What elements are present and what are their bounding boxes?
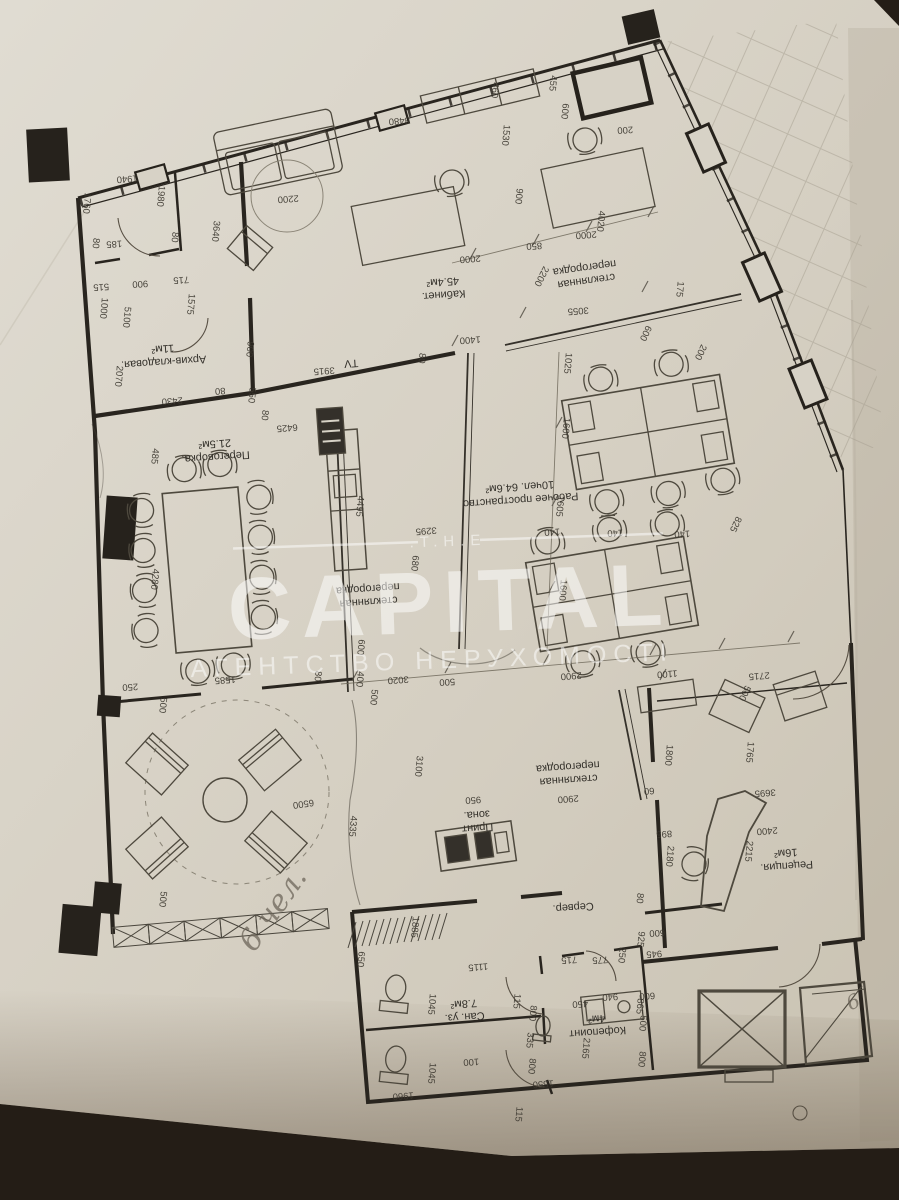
room-label-glass-partition-3: стекляннаяперегородка <box>535 758 601 788</box>
dimension-label: 4335 <box>346 815 359 837</box>
dimension-label: 4495 <box>353 495 366 517</box>
dimension-label: 2200 <box>277 192 299 204</box>
dimension-label: 940 <box>602 990 619 1002</box>
dimension-label: 1100 <box>657 667 678 679</box>
dimension-label: 80 <box>215 385 226 397</box>
dimension-label: 250 <box>122 680 139 692</box>
dimension-label: 925 <box>634 931 646 948</box>
dimension-label: 900 <box>132 277 149 289</box>
dimension-label: 1765 <box>743 741 756 763</box>
dimension-label: 600 <box>649 926 666 938</box>
dimension-label: 3100 <box>412 755 425 777</box>
dimension-label: 1940 <box>116 172 138 184</box>
dimension-label: 80 <box>416 352 428 363</box>
dimension-label: 1115 <box>468 960 488 972</box>
dimension-label: 500 <box>367 689 379 706</box>
dimension-label: 775 <box>592 953 609 965</box>
dimension-label: 140 <box>607 526 624 538</box>
dimension-label: 115 <box>510 993 522 1009</box>
dimension-label: 800 <box>525 1058 537 1075</box>
dimension-label: 100 <box>463 1055 480 1067</box>
dimension-label: 1045 <box>425 993 438 1015</box>
dimension-label: 2215 <box>742 840 755 862</box>
dimension-label: 1550 <box>532 1077 554 1089</box>
dimension-label: 115 <box>512 1106 524 1122</box>
dimension-label: 2430 <box>161 394 183 406</box>
dimension-label: 3640 <box>209 220 222 242</box>
dimension-label: 715 <box>173 273 190 285</box>
dimension-label: 2400 <box>756 824 778 836</box>
dimension-label: 175 <box>673 281 685 298</box>
dimension-label: 550 <box>245 387 257 404</box>
dimension-label: 3695 <box>754 786 776 798</box>
dimension-label: 80 <box>259 409 271 420</box>
dimension-label: 800 <box>635 1051 647 1068</box>
dimension-label: 850 <box>526 239 543 251</box>
dimension-label: 900 <box>243 341 255 358</box>
dimension-label: 1885 <box>408 916 421 938</box>
dimension-label: 1980 <box>154 185 167 207</box>
photo-of-floor-plan: 1760801851940198080364022008480460455153… <box>0 0 899 1200</box>
dimension-label: 715 <box>561 953 578 965</box>
dimension-label: 4280 <box>148 568 161 590</box>
dimension-label: 2900 <box>560 669 582 681</box>
dimension-label: 1000 <box>97 297 110 319</box>
dimension-label: 80 <box>169 231 181 242</box>
dimension-label: 5100 <box>120 306 133 328</box>
dimension-label: 895 <box>656 827 673 839</box>
dimension-label: 1600 <box>559 417 572 439</box>
dimension-label: 3915 <box>313 364 335 376</box>
dimension-label: 140 <box>544 525 561 537</box>
dimension-label: 600 <box>558 103 570 120</box>
dimension-label: 185 <box>106 237 123 249</box>
dimension-label: 250 <box>615 947 627 964</box>
dimension-label: 2900 <box>557 792 579 804</box>
watermark-the: .T.H.E <box>409 532 486 552</box>
dimension-label: 1025 <box>561 352 574 374</box>
dimension-label: 800 <box>526 1005 538 1022</box>
dimension-label: 80 <box>634 892 646 903</box>
dimension-label: 2000 <box>575 228 597 240</box>
dimension-label: 80 <box>90 237 102 248</box>
dimension-label: 500 <box>156 697 168 714</box>
dimension-label: 485 <box>148 448 160 465</box>
dimension-label: 6425 <box>276 421 298 433</box>
dimension-label: 140 <box>674 527 691 539</box>
room-label-kabinet: Кабинет.45.4м² <box>421 274 466 302</box>
dimension-label: 2180 <box>663 845 676 867</box>
room-label-print-zone: Принтзона. <box>461 807 494 834</box>
dimension-label: 500 <box>156 891 168 908</box>
dimension-label: 1575 <box>184 293 197 315</box>
dimension-label: 2165 <box>579 1037 592 1059</box>
dimension-label: 450 <box>572 997 589 1009</box>
dimension-label: 1960 <box>392 1089 414 1101</box>
dimension-label: 2715 <box>748 669 770 681</box>
dimension-label: 865 <box>633 998 645 1015</box>
dimension-label: 1400 <box>459 333 481 345</box>
dimension-label: 460 <box>488 82 500 99</box>
dimension-label: 335 <box>523 1032 535 1049</box>
dimension-label: 515 <box>93 280 110 292</box>
dimension-label: 455 <box>546 75 558 92</box>
dimension-label: 3055 <box>567 304 589 316</box>
dimension-label: 1045 <box>425 1062 438 1084</box>
dimension-label: 1530 <box>499 124 512 146</box>
dimension-label: 1760 <box>80 192 93 214</box>
dimension-label: 1800 <box>662 744 675 766</box>
dimension-label: 60 <box>644 785 655 797</box>
dimension-label: 650 <box>354 951 366 968</box>
dimension-label: 200 <box>617 123 634 135</box>
dimension-label: 500 <box>439 675 456 687</box>
copier-icon <box>316 407 345 455</box>
floorplan-svg: 1760801851940198080364022008480460455153… <box>0 0 899 1200</box>
dimension-label: 2000 <box>459 252 481 264</box>
dimension-label: 900 <box>512 188 524 205</box>
dimension-label: 945 <box>646 947 663 959</box>
dimension-label: 950 <box>465 793 482 805</box>
dimension-label: 500 <box>636 1015 648 1032</box>
dimension-label: 8480 <box>388 114 410 126</box>
room-label-tv: TV <box>343 357 359 370</box>
